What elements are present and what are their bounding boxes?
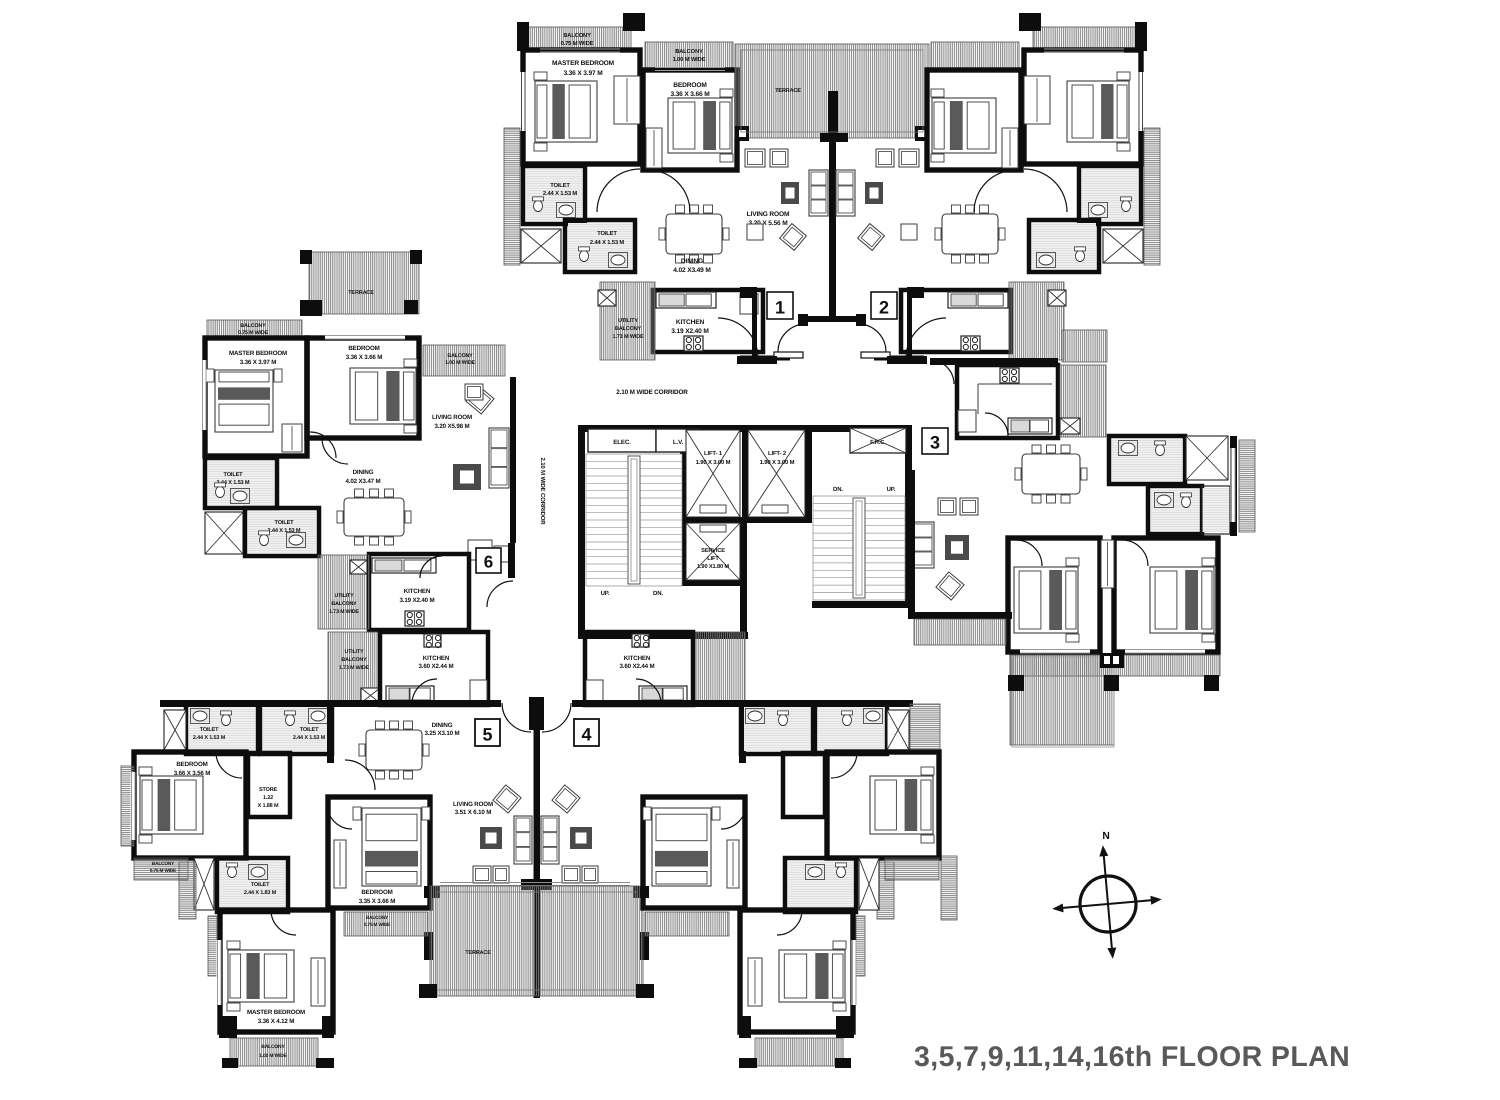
svg-text:3.35 X 3.66 M: 3.35 X 3.66 M: [359, 898, 396, 905]
svg-text:0.75 M WIDE: 0.75 M WIDE: [364, 922, 390, 927]
svg-text:6: 6: [484, 553, 493, 572]
svg-text:LIFT- 2: LIFT- 2: [768, 450, 787, 457]
svg-text:3.36 X 3.66 M: 3.36 X 3.66 M: [346, 354, 383, 361]
svg-text:2: 2: [879, 298, 889, 318]
svg-text:2.10 M WIDE CORRIDOR: 2.10 M WIDE CORRIDOR: [539, 457, 546, 525]
svg-text:3.19 X2.40 M: 3.19 X2.40 M: [671, 328, 709, 335]
svg-text:N: N: [1102, 831, 1109, 842]
svg-text:TOILET: TOILET: [300, 727, 319, 733]
svg-text:DN.: DN.: [653, 590, 663, 597]
svg-text:4.02 X3.49 M: 4.02 X3.49 M: [673, 267, 711, 274]
svg-text:BALCONY: BALCONY: [240, 323, 266, 329]
svg-text:ELEC.: ELEC.: [613, 439, 631, 446]
svg-text:2.10 M WIDE CORRIDOR: 2.10 M WIDE CORRIDOR: [616, 389, 688, 396]
svg-text:STORE: STORE: [259, 787, 278, 793]
svg-text:BALCONY: BALCONY: [563, 32, 591, 39]
svg-text:3: 3: [930, 433, 940, 453]
svg-text:UP.: UP.: [601, 590, 610, 597]
svg-text:UTILITY: UTILITY: [335, 593, 355, 599]
svg-text:KITCHEN: KITCHEN: [624, 655, 651, 662]
svg-text:BALCONY: BALCONY: [675, 48, 703, 55]
svg-text:0.75 M WIDE: 0.75 M WIDE: [150, 868, 176, 873]
svg-text:1.73 M WIDE: 1.73 M WIDE: [329, 609, 359, 615]
svg-text:5: 5: [482, 725, 492, 745]
svg-text:X 1.88 M: X 1.88 M: [258, 803, 279, 809]
svg-text:4.02 X3.47 M: 4.02 X3.47 M: [345, 478, 380, 485]
svg-text:TOILET: TOILET: [550, 182, 570, 189]
svg-text:LIFT: LIFT: [707, 556, 719, 562]
svg-text:BALCONY: BALCONY: [331, 601, 357, 607]
svg-text:2.44 X 1.53 M: 2.44 X 1.53 M: [590, 239, 624, 246]
svg-text:2.44 X 1.53 M: 2.44 X 1.53 M: [193, 735, 226, 741]
svg-text:UTILITY: UTILITY: [618, 318, 638, 324]
svg-text:F.H.C.: F.H.C.: [870, 439, 886, 446]
svg-text:UP.: UP.: [887, 486, 896, 493]
svg-text:1.00 M WIDE: 1.00 M WIDE: [259, 1053, 287, 1059]
svg-text:MASTER BEDROOM: MASTER BEDROOM: [247, 1009, 305, 1016]
svg-text:BALCONY: BALCONY: [152, 861, 175, 866]
svg-text:TOILET: TOILET: [200, 727, 219, 733]
svg-text:TOILET: TOILET: [275, 520, 295, 526]
svg-text:BEDROOM: BEDROOM: [673, 82, 707, 89]
svg-text:3.36 X 3.66 M: 3.36 X 3.66 M: [670, 91, 710, 98]
svg-text:DINING: DINING: [681, 258, 703, 265]
svg-text:TOILET: TOILET: [251, 882, 270, 888]
svg-text:TERRACE: TERRACE: [465, 950, 491, 956]
svg-text:1.00 M WIDE: 1.00 M WIDE: [673, 56, 706, 63]
svg-text:1: 1: [775, 298, 785, 318]
svg-text:BALCONY: BALCONY: [366, 915, 389, 920]
svg-text:TERRACE: TERRACE: [348, 290, 374, 296]
svg-text:1.22: 1.22: [263, 795, 273, 801]
svg-text:TERRACE: TERRACE: [775, 88, 801, 94]
svg-text:BALCONY: BALCONY: [615, 326, 642, 332]
svg-text:TOILET: TOILET: [224, 472, 244, 478]
svg-text:DINING: DINING: [432, 722, 453, 729]
svg-text:0.75 M WIDE: 0.75 M WIDE: [561, 40, 594, 47]
svg-text:1.90 X 3.00 M: 1.90 X 3.00 M: [760, 459, 795, 466]
svg-text:0.75 M WIDE: 0.75 M WIDE: [238, 330, 268, 336]
svg-text:LIFT- 1: LIFT- 1: [704, 450, 723, 457]
svg-text:3.60 X2.44 M: 3.60 X2.44 M: [418, 663, 453, 670]
svg-text:DN.: DN.: [833, 486, 843, 493]
svg-text:BALCONY: BALCONY: [447, 353, 473, 359]
svg-text:1.73 M WIDE: 1.73 M WIDE: [612, 334, 644, 340]
svg-text:MASTER BEDROOM: MASTER BEDROOM: [229, 350, 287, 357]
svg-text:2.44 X 1.53 M: 2.44 X 1.53 M: [543, 190, 577, 197]
svg-text:BALCONY: BALCONY: [341, 657, 367, 663]
svg-text:3.51 X 6.10 M: 3.51 X 6.10 M: [455, 809, 492, 816]
svg-text:L.V.: L.V.: [673, 439, 684, 446]
svg-text:KITCHEN: KITCHEN: [404, 588, 431, 595]
svg-text:3.19 X2.40 M: 3.19 X2.40 M: [399, 597, 434, 604]
svg-text:3.20 X5.98 M: 3.20 X5.98 M: [434, 423, 469, 430]
svg-text:BEDROOM: BEDROOM: [348, 345, 379, 352]
svg-text:2.44 X 1.83 M: 2.44 X 1.83 M: [244, 890, 277, 896]
svg-text:3.60 X2.44 M: 3.60 X2.44 M: [619, 663, 654, 670]
svg-text:BEDROOM: BEDROOM: [176, 761, 207, 768]
svg-text:TOILET: TOILET: [597, 230, 617, 237]
svg-text:SERVICE: SERVICE: [701, 548, 725, 554]
svg-text:2.44 X 1.53 M: 2.44 X 1.53 M: [293, 735, 326, 741]
svg-text:BEDROOM: BEDROOM: [361, 889, 392, 896]
svg-text:UTILITY: UTILITY: [345, 649, 365, 655]
svg-text:3.36 X 3.97 M: 3.36 X 3.97 M: [240, 359, 277, 366]
svg-text:4: 4: [581, 725, 591, 745]
svg-text:3.36 X 3.97 M: 3.36 X 3.97 M: [563, 70, 603, 77]
svg-text:1.90 X1.80 M: 1.90 X1.80 M: [697, 564, 729, 570]
svg-text:KITCHEN: KITCHEN: [423, 655, 450, 662]
svg-text:KITCHEN: KITCHEN: [676, 319, 705, 326]
svg-text:3,5,7,9,11,14,16th FLOOR PLAN: 3,5,7,9,11,14,16th FLOOR PLAN: [914, 1041, 1350, 1073]
svg-text:3.25 X3.10 M: 3.25 X3.10 M: [424, 730, 459, 737]
svg-text:1.00 M WIDE: 1.00 M WIDE: [445, 360, 475, 366]
svg-text:1.73 M WIDE: 1.73 M WIDE: [339, 665, 369, 671]
svg-text:BALCONY: BALCONY: [261, 1044, 285, 1050]
svg-text:1.90 X 3.00 M: 1.90 X 3.00 M: [696, 459, 731, 466]
svg-text:MASTER BEDROOM: MASTER BEDROOM: [552, 60, 615, 67]
svg-text:LIVING ROOM: LIVING ROOM: [747, 211, 790, 218]
svg-text:2.44 X 1.53 M: 2.44 X 1.53 M: [268, 528, 301, 534]
svg-text:LIVING ROOM: LIVING ROOM: [453, 801, 493, 808]
svg-text:DINING: DINING: [353, 469, 374, 476]
svg-text:LIVING ROOM: LIVING ROOM: [432, 414, 472, 421]
svg-text:3.36 X 4.12 M: 3.36 X 4.12 M: [258, 1018, 295, 1025]
